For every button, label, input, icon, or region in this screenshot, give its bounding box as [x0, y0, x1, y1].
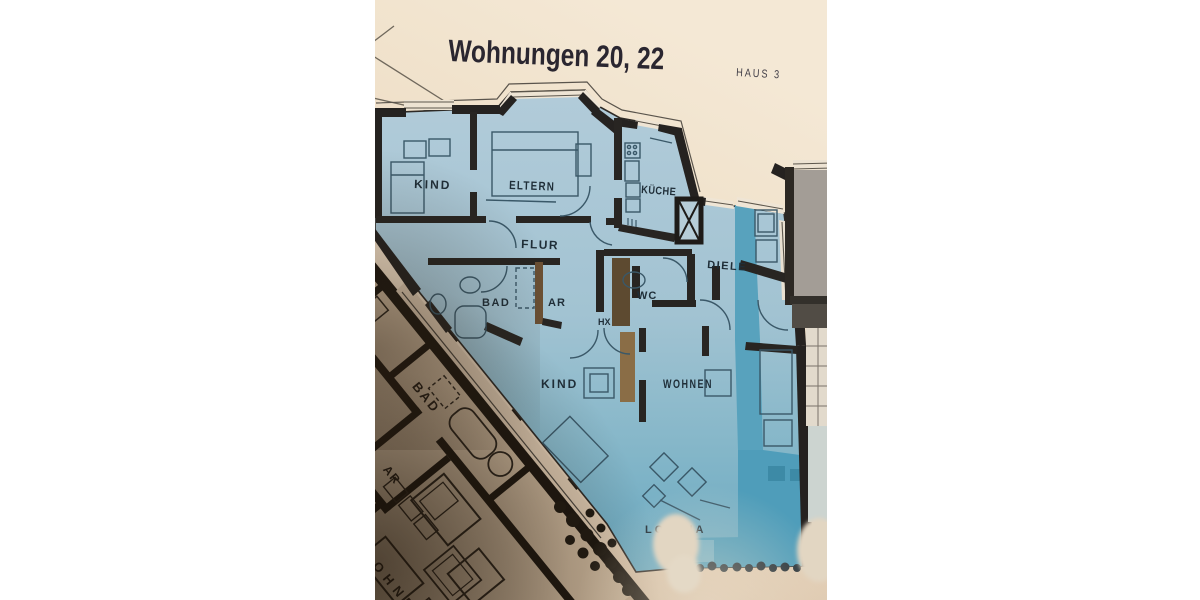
svg-text:KÜCHE: KÜCHE [641, 183, 677, 198]
svg-text:HAUS 3: HAUS 3 [736, 67, 782, 81]
